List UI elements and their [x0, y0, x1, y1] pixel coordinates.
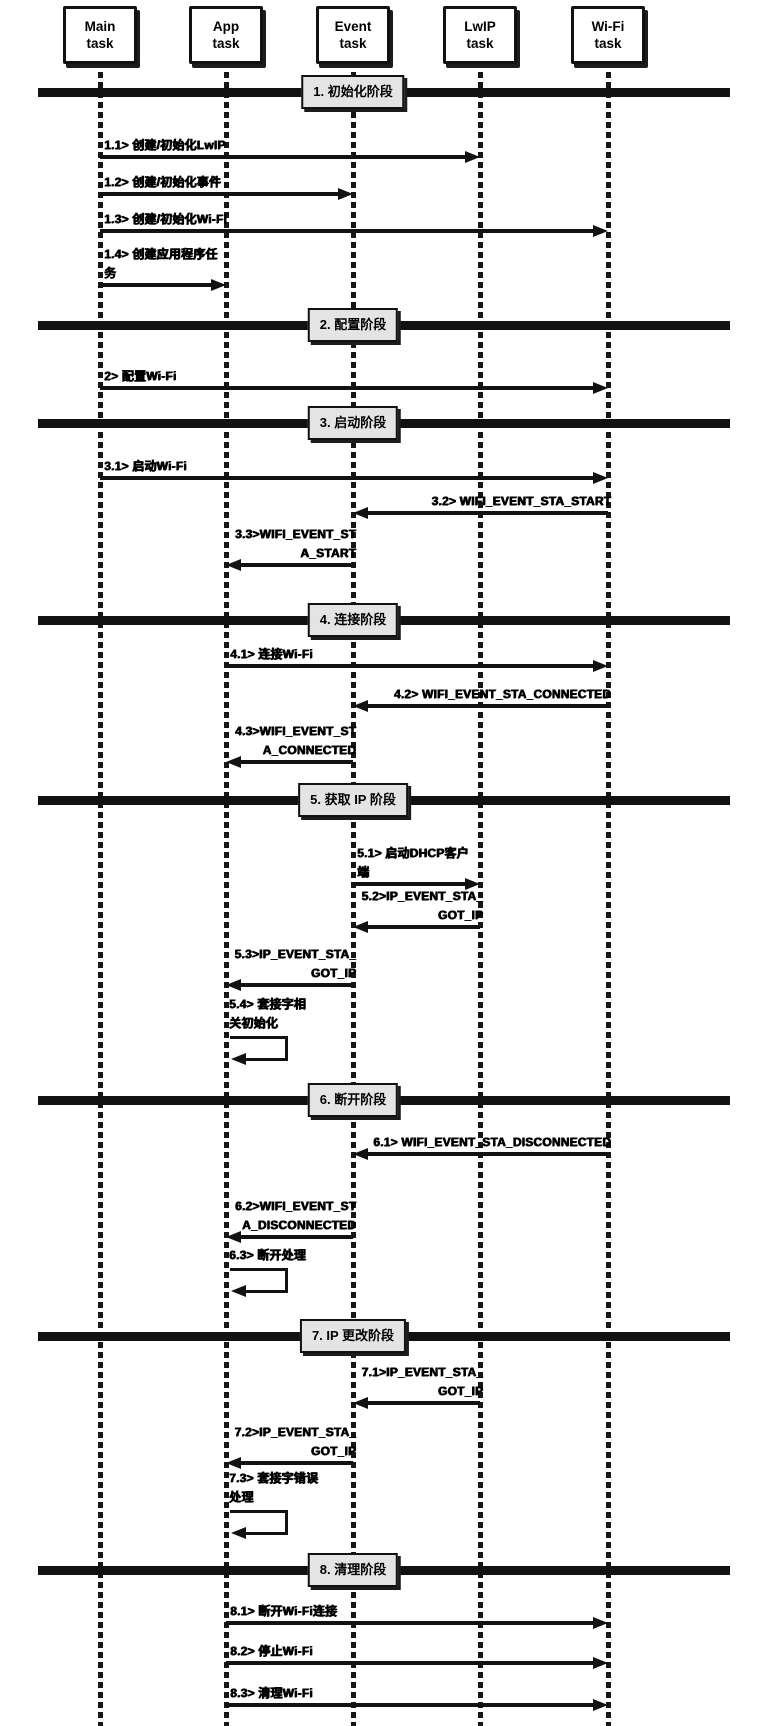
participant-label: App	[213, 18, 239, 35]
message-label-line: 4.3>WIFI_EVENT_ST	[235, 722, 356, 741]
message-label-4.2: 4.2> WIFI_EVENT_STA_CONNECTED	[394, 685, 611, 704]
message-arrow-5.1	[353, 882, 470, 886]
message-label-line: 4.2> WIFI_EVENT_STA_CONNECTED	[394, 685, 611, 704]
participant-main: Maintask	[63, 6, 137, 64]
message-label-6.2: 6.2>WIFI_EVENT_STA_DISCONNECTED	[235, 1197, 356, 1235]
message-label-1.3: 1.3> 创建/初始化Wi-Fi	[104, 210, 227, 229]
message-label-line: 5.2>IP_EVENT_STA_	[361, 887, 483, 906]
message-label-5.4: 5.4> 套接字相关初始化	[229, 995, 306, 1033]
message-label-8.1: 8.1> 断开Wi-Fi连接	[230, 1602, 337, 1621]
message-label-line: 8.1> 断开Wi-Fi连接	[230, 1602, 337, 1621]
message-arrow-4.3	[236, 760, 353, 764]
message-arrowhead-6.1	[353, 1148, 368, 1160]
message-arrow-1.3	[100, 229, 598, 233]
message-label-1.1: 1.1> 创建/初始化LwIP	[104, 136, 225, 155]
message-label-line: 6.3> 断开处理	[229, 1246, 306, 1265]
message-arrow-8.3	[226, 1703, 598, 1707]
message-label-line: A_CONNECTED	[235, 741, 356, 760]
message-arrowhead-3.1	[593, 472, 608, 484]
message-label-4.1: 4.1> 连接Wi-Fi	[230, 645, 313, 664]
phase-label: 1. 初始化阶段	[301, 75, 404, 109]
message-arrow-1.1	[100, 155, 470, 159]
lifeline-wifi	[606, 62, 611, 1726]
message-label-line: 1.1> 创建/初始化LwIP	[104, 136, 225, 155]
participant-label: Main	[85, 18, 116, 35]
message-label-line: 8.3> 清理Wi-Fi	[230, 1684, 313, 1703]
message-arrow-6.1	[363, 1152, 608, 1156]
participant-label: task	[339, 35, 366, 52]
message-arrowhead-8.1	[593, 1617, 608, 1629]
self-call-arrowhead-5.4	[231, 1053, 246, 1065]
message-label-line: GOT_IP	[234, 964, 356, 983]
self-call-arrowhead-6.3	[231, 1285, 246, 1297]
message-label-line: GOT_IP	[234, 1442, 356, 1461]
message-label-line: 3.2> WIFI_EVENT_STA_START	[431, 492, 611, 511]
message-label-line: 务	[104, 264, 217, 283]
message-arrowhead-1.3	[593, 225, 608, 237]
message-arrow-7.1	[363, 1401, 480, 1405]
message-label-3.2: 3.2> WIFI_EVENT_STA_START	[431, 492, 611, 511]
self-call-bottom-5.4	[243, 1058, 288, 1061]
participant-wifi: Wi-Fitask	[571, 6, 645, 64]
message-arrow-2	[100, 386, 598, 390]
message-arrowhead-8.3	[593, 1699, 608, 1711]
message-label-5.2: 5.2>IP_EVENT_STA_GOT_IP	[361, 887, 483, 925]
message-label-5.1: 5.1> 启动DHCP客户端	[357, 844, 469, 882]
participant-event: Eventtask	[316, 6, 390, 64]
phase-label: 4. 连接阶段	[308, 603, 398, 637]
message-label-line: GOT_IP	[361, 906, 483, 925]
self-call-bottom-6.3	[243, 1290, 288, 1293]
message-arrowhead-8.2	[593, 1657, 608, 1669]
phase-label: 6. 断开阶段	[308, 1083, 398, 1117]
self-call-bottom-7.3	[243, 1532, 288, 1535]
self-call-top-7.3	[230, 1510, 288, 1513]
phase-label: 2. 配置阶段	[308, 308, 398, 342]
message-label-line: 5.3>IP_EVENT_STA_	[234, 945, 356, 964]
message-label-line: 5.1> 启动DHCP客户	[357, 844, 469, 863]
self-call-top-6.3	[230, 1268, 288, 1271]
participant-label: Wi-Fi	[592, 18, 625, 35]
message-label-line: 处理	[229, 1488, 318, 1507]
phase-label: 7. IP 更改阶段	[300, 1319, 406, 1353]
participant-lwip: LwIPtask	[443, 6, 517, 64]
message-label-line: 6.2>WIFI_EVENT_ST	[235, 1197, 356, 1216]
message-label-1.2: 1.2> 创建/初始化事件	[104, 173, 221, 192]
message-label-6.3: 6.3> 断开处理	[229, 1246, 306, 1265]
message-arrow-3.2	[363, 511, 608, 515]
message-arrow-1.4	[100, 283, 216, 287]
message-arrow-3.1	[100, 476, 598, 480]
message-arrow-5.3	[236, 983, 353, 987]
message-label-line: A_DISCONNECTED	[235, 1216, 356, 1235]
message-arrowhead-1.1	[465, 151, 480, 163]
message-label-line: GOT_IP	[361, 1382, 483, 1401]
message-label-line: 1.3> 创建/初始化Wi-Fi	[104, 210, 227, 229]
message-label-7.2: 7.2>IP_EVENT_STA_GOT_IP	[234, 1423, 356, 1461]
message-label-line: 8.2> 停止Wi-Fi	[230, 1642, 313, 1661]
message-label-7.3: 7.3> 套接字错误处理	[229, 1469, 318, 1507]
message-arrowhead-4.2	[353, 700, 368, 712]
message-arrowhead-3.2	[353, 507, 368, 519]
message-arrow-3.3	[236, 563, 353, 567]
self-call-top-5.4	[230, 1036, 288, 1039]
lifeline-main	[98, 62, 103, 1726]
message-arrow-6.2	[236, 1235, 353, 1239]
sequence-diagram: MaintaskApptaskEventtaskLwIPtaskWi-Fitas…	[0, 0, 768, 1726]
message-label-3.3: 3.3>WIFI_EVENT_STA_START	[235, 525, 356, 563]
message-label-line: 5.4> 套接字相	[229, 995, 306, 1014]
participant-label: Event	[335, 18, 372, 35]
participant-label: task	[212, 35, 239, 52]
phase-label: 8. 清理阶段	[308, 1553, 398, 1587]
message-arrow-4.1	[226, 664, 598, 668]
participant-label: task	[466, 35, 493, 52]
message-label-5.3: 5.3>IP_EVENT_STA_GOT_IP	[234, 945, 356, 983]
message-label-line: 3.3>WIFI_EVENT_ST	[235, 525, 356, 544]
message-arrowhead-4.1	[593, 660, 608, 672]
message-arrow-7.2	[236, 1461, 353, 1465]
message-arrowhead-2	[593, 382, 608, 394]
message-label-line: 6.1> WIFI_EVENT_STA_DISCONNECTED	[373, 1133, 611, 1152]
message-arrow-4.2	[363, 704, 608, 708]
message-label-4.3: 4.3>WIFI_EVENT_STA_CONNECTED	[235, 722, 356, 760]
message-arrow-8.1	[226, 1621, 598, 1625]
message-label-6.1: 6.1> WIFI_EVENT_STA_DISCONNECTED	[373, 1133, 611, 1152]
participant-label: task	[594, 35, 621, 52]
participant-label: task	[86, 35, 113, 52]
message-label-line: 4.1> 连接Wi-Fi	[230, 645, 313, 664]
message-label-1.4: 1.4> 创建应用程序任务	[104, 245, 217, 283]
message-label-2: 2> 配置Wi-Fi	[104, 367, 176, 386]
message-label-line: A_START	[235, 544, 356, 563]
participant-app: Apptask	[189, 6, 263, 64]
message-label-3.1: 3.1> 启动Wi-Fi	[104, 457, 187, 476]
lifeline-app	[224, 62, 229, 1726]
message-label-8.2: 8.2> 停止Wi-Fi	[230, 1642, 313, 1661]
message-arrowhead-1.2	[338, 188, 353, 200]
message-arrow-8.2	[226, 1661, 598, 1665]
message-label-8.3: 8.3> 清理Wi-Fi	[230, 1684, 313, 1703]
participant-label: LwIP	[464, 18, 496, 35]
message-arrow-5.2	[363, 925, 480, 929]
message-label-line: 1.4> 创建应用程序任	[104, 245, 217, 264]
self-call-arrowhead-7.3	[231, 1527, 246, 1539]
phase-label: 3. 启动阶段	[308, 406, 398, 440]
message-label-line: 1.2> 创建/初始化事件	[104, 173, 221, 192]
message-arrow-1.2	[100, 192, 343, 196]
message-label-line: 2> 配置Wi-Fi	[104, 367, 176, 386]
message-label-7.1: 7.1>IP_EVENT_STA_GOT_IP	[361, 1363, 483, 1401]
phase-label: 5. 获取 IP 阶段	[298, 783, 408, 817]
message-label-line: 3.1> 启动Wi-Fi	[104, 457, 187, 476]
message-label-line: 7.2>IP_EVENT_STA_	[234, 1423, 356, 1442]
message-label-line: 关初始化	[229, 1014, 306, 1033]
message-label-line: 7.1>IP_EVENT_STA_	[361, 1363, 483, 1382]
message-label-line: 7.3> 套接字错误	[229, 1469, 318, 1488]
message-label-line: 端	[357, 863, 469, 882]
